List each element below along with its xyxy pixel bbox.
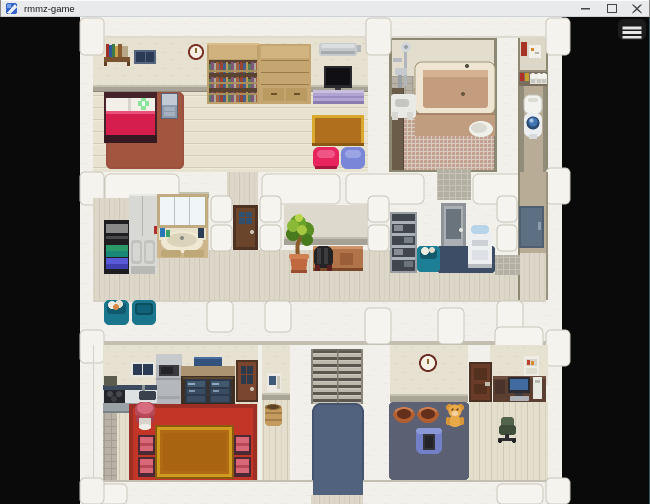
svg-text:rmmz-game: rmmz-game	[24, 4, 75, 15]
